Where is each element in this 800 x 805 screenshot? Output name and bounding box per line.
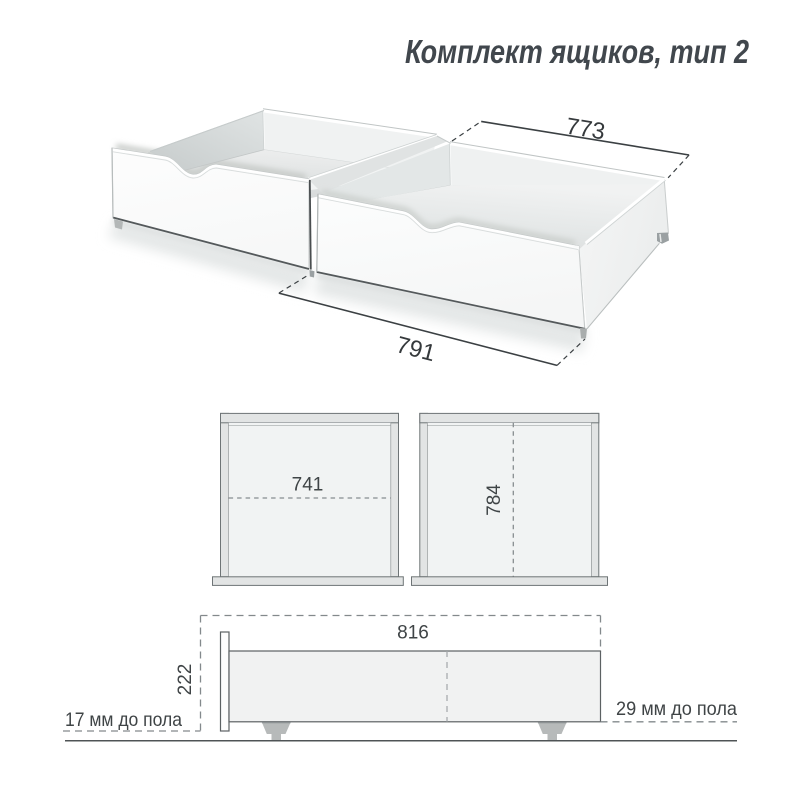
svg-text:222: 222 (175, 664, 196, 696)
svg-text:29 мм до пола: 29 мм до пола (616, 698, 737, 720)
svg-text:Комплект ящиков, тип 2: Комплект ящиков, тип 2 (405, 33, 750, 70)
svg-text:741: 741 (292, 475, 324, 496)
svg-text:773: 773 (564, 113, 607, 145)
svg-text:791: 791 (394, 331, 439, 366)
svg-text:17 мм до пола: 17 мм до пола (65, 709, 182, 731)
svg-text:816: 816 (397, 623, 429, 644)
svg-text:784: 784 (484, 484, 505, 516)
